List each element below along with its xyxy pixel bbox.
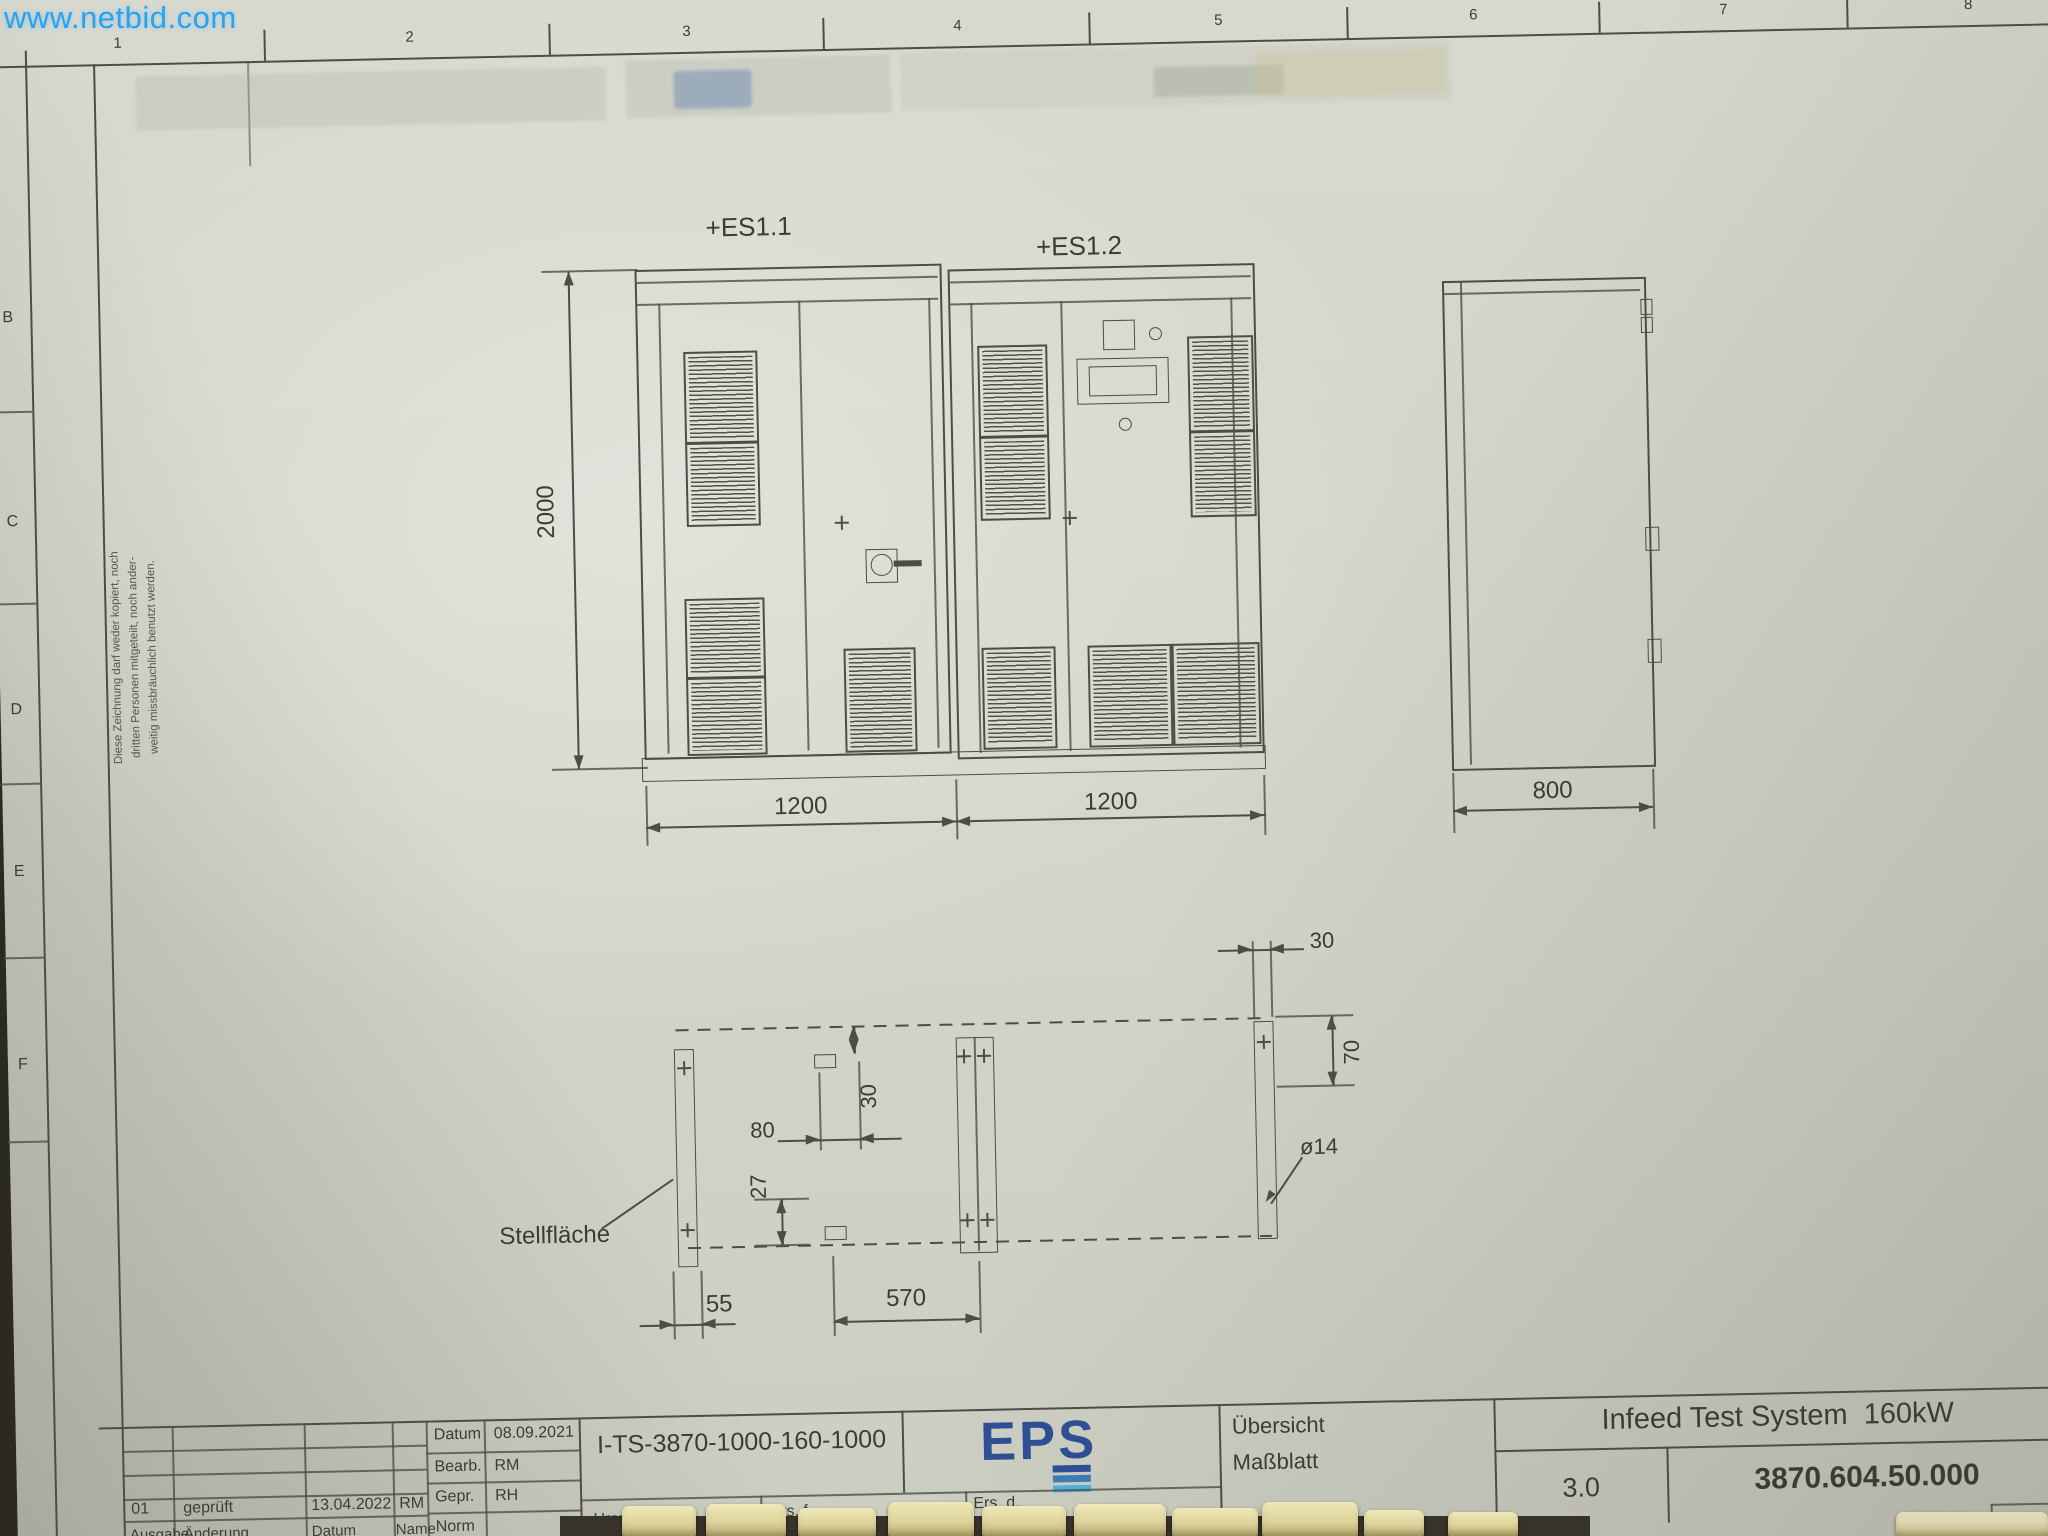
dim-ext-line bbox=[1252, 941, 1255, 1019]
dim-ext-line bbox=[541, 269, 637, 273]
fixing-hole-mark bbox=[680, 1223, 694, 1237]
page-tab bbox=[1364, 1510, 1424, 1536]
fixing-hole-mark bbox=[977, 1049, 991, 1063]
left-margin-line bbox=[25, 51, 59, 1536]
dim-arrow bbox=[1327, 1072, 1337, 1086]
dim-arrow bbox=[564, 271, 574, 285]
table-line bbox=[392, 1421, 396, 1536]
dim-line-depth bbox=[1453, 806, 1653, 812]
ruler-tick bbox=[8, 1141, 48, 1143]
ruler-number: 3 bbox=[666, 22, 706, 40]
info-label-bearb: Bearb. bbox=[434, 1458, 482, 1477]
table-line bbox=[123, 1469, 427, 1477]
dim-arrow bbox=[965, 1313, 979, 1323]
page-tab bbox=[1172, 1508, 1258, 1536]
table-line bbox=[427, 1509, 580, 1514]
dim-arrow bbox=[1453, 806, 1467, 816]
page-tab bbox=[1448, 1512, 1518, 1536]
vent-grille bbox=[1087, 644, 1173, 748]
page-tab bbox=[1262, 1502, 1358, 1536]
dim-cutout-offset-h-label: 80 bbox=[707, 1116, 818, 1144]
vent-grille bbox=[1187, 335, 1255, 432]
table-line bbox=[427, 1479, 580, 1484]
watermark: www.netbid.com bbox=[4, 0, 237, 36]
dim-arrow bbox=[776, 1199, 786, 1213]
info-label-norm: Norm bbox=[436, 1518, 475, 1536]
dim-arrow bbox=[777, 1231, 787, 1245]
table-line bbox=[426, 1421, 430, 1536]
vent-grille bbox=[979, 435, 1051, 520]
dim-arrow bbox=[1238, 944, 1252, 954]
dim-ext-line bbox=[955, 779, 958, 839]
fixing-hole-mark bbox=[960, 1213, 974, 1227]
drawing-sheet: 1 2 3 4 5 6 7 8 B C D E F Diese Zeichnun… bbox=[0, 0, 2048, 1536]
dim-depth-label: 800 bbox=[1472, 775, 1633, 806]
display-screen bbox=[1089, 365, 1158, 396]
dim-arrow bbox=[1250, 810, 1264, 820]
dim-arrow bbox=[848, 1026, 858, 1040]
dim-line bbox=[834, 1318, 980, 1323]
info-label-datum: Datum bbox=[434, 1426, 481, 1445]
floor-cutout bbox=[814, 1054, 836, 1068]
bleed-through-logo-mark bbox=[673, 70, 752, 110]
eps-logo-bar bbox=[1053, 1465, 1091, 1473]
dim-arrow bbox=[956, 816, 970, 826]
fixing-hole-mark bbox=[1257, 1035, 1271, 1049]
dim-ext-line bbox=[552, 767, 648, 771]
vent-grille bbox=[683, 350, 759, 444]
dim-line bbox=[1218, 948, 1304, 952]
revision-name: RM bbox=[399, 1495, 424, 1514]
part-number: 3870.604.50.000 bbox=[1677, 1457, 2048, 1499]
bleed-through-mark bbox=[1255, 49, 1446, 97]
drawing-title: Infeed Test System 160kW bbox=[1513, 1395, 2042, 1439]
dim-arrow bbox=[1326, 1016, 1336, 1030]
table-line bbox=[901, 1411, 905, 1493]
page-tab bbox=[706, 1504, 786, 1536]
table-line bbox=[304, 1423, 308, 1536]
dim-arrow bbox=[849, 1040, 859, 1054]
dim-line bbox=[640, 1323, 736, 1327]
revision-header-date: Datum bbox=[312, 1522, 357, 1536]
ruler-letter: F bbox=[18, 1056, 28, 1074]
vent-grille bbox=[977, 344, 1049, 437]
table-line bbox=[122, 1445, 426, 1453]
table-line bbox=[1991, 1502, 2048, 1505]
dim-line-height bbox=[568, 271, 580, 769]
info-value-gepr: RH bbox=[495, 1487, 518, 1505]
page-tab bbox=[982, 1506, 1066, 1536]
copyright-note: Diese Zeichnung darf weder kopiert, noch… bbox=[105, 477, 166, 838]
dim-arrow bbox=[646, 823, 660, 833]
mounting-rail-right bbox=[1253, 1021, 1278, 1239]
info-value-datum: 08.09.2021 bbox=[494, 1424, 574, 1444]
ruler-tick bbox=[1598, 2, 1601, 33]
version-number: 3.0 bbox=[1511, 1471, 1652, 1505]
dim-ext-line bbox=[1263, 775, 1266, 835]
ruler-number: 2 bbox=[389, 28, 429, 46]
revision-change: geprüft bbox=[183, 1499, 233, 1518]
ruler-number: 4 bbox=[937, 17, 977, 35]
ruler-tick bbox=[1346, 7, 1349, 38]
dim-arrow bbox=[659, 1319, 673, 1329]
revision-header-issue: Ausgabe bbox=[130, 1526, 190, 1536]
photo-of-drawing: 1 2 3 4 5 6 7 8 B C D E F Diese Zeichnun… bbox=[0, 0, 2048, 1536]
dim-arrow bbox=[1270, 944, 1284, 954]
main-switch-handle bbox=[894, 560, 922, 567]
dim-cutout-spacing-label: 570 bbox=[826, 1283, 987, 1314]
side-view-outline bbox=[1442, 277, 1656, 771]
fixing-hole-mark bbox=[677, 1061, 691, 1075]
dim-width1-label: 1200 bbox=[720, 791, 881, 822]
ruler-tick bbox=[4, 957, 44, 959]
page-tab bbox=[888, 1502, 974, 1536]
revision-header-name: Name bbox=[396, 1520, 436, 1536]
info-value-bearb: RM bbox=[494, 1457, 519, 1476]
dim-arrow bbox=[574, 755, 584, 769]
ruler-number: 5 bbox=[1198, 11, 1238, 29]
ruler-tick bbox=[0, 603, 36, 605]
ruler-number: 1 bbox=[97, 34, 137, 52]
hinge bbox=[1647, 639, 1661, 663]
ruler-letter: D bbox=[10, 701, 22, 719]
ruler-number: 7 bbox=[1703, 1, 1743, 19]
ruler-tick bbox=[0, 411, 32, 413]
cabinet1-label: +ES1.1 bbox=[668, 210, 829, 244]
door-lock-mark bbox=[835, 516, 849, 530]
dim-cutout-bottom-offset-label: 27 bbox=[745, 1146, 773, 1227]
fixing-hole-mark bbox=[980, 1213, 994, 1227]
vent-grille bbox=[1189, 430, 1257, 517]
table-line bbox=[1493, 1398, 1498, 1526]
ruler-tick bbox=[822, 18, 825, 49]
dim-arrow bbox=[833, 1316, 847, 1326]
ruler-letter: C bbox=[6, 513, 18, 531]
door-lock-mark bbox=[1063, 511, 1077, 525]
dim-arrow bbox=[701, 1319, 715, 1329]
hinge bbox=[1645, 527, 1659, 551]
vent-grille bbox=[685, 441, 761, 527]
dim-arrow bbox=[860, 1133, 874, 1143]
ruler-tick bbox=[1846, 0, 1849, 28]
dim-height-label: 2000 bbox=[532, 472, 562, 553]
fixing-hole-mark bbox=[957, 1049, 971, 1063]
page-tab bbox=[622, 1506, 696, 1536]
revision-date: 13.04.2022 bbox=[311, 1495, 391, 1515]
ruler-letter: E bbox=[14, 863, 25, 881]
dim-hole-diameter-label: ø14 bbox=[1300, 1134, 1338, 1161]
eps-logo: EPS bbox=[979, 1409, 1097, 1473]
dim-arrow bbox=[942, 816, 956, 826]
table-line bbox=[426, 1449, 579, 1454]
floor-cutout bbox=[825, 1226, 847, 1240]
dim-front-offset-label: 55 bbox=[679, 1290, 760, 1320]
vent-grille bbox=[981, 646, 1057, 750]
panel-button bbox=[1103, 320, 1136, 351]
dim-ext-line bbox=[645, 786, 648, 846]
dim-rail-width-label: 30 bbox=[1309, 928, 1334, 955]
ruler-number: 6 bbox=[1453, 6, 1493, 24]
hinge bbox=[1640, 299, 1652, 315]
table-line bbox=[1494, 1438, 2048, 1453]
plan-area-label: Stellfläche bbox=[464, 1220, 645, 1252]
revision-issue: 01 bbox=[131, 1500, 149, 1518]
dim-edge-offset-label: 70 bbox=[1338, 1012, 1366, 1093]
hinge bbox=[1641, 317, 1653, 333]
ruler-tick bbox=[263, 30, 266, 61]
ruler-letter: B bbox=[2, 309, 13, 327]
ruler-tick bbox=[1088, 12, 1091, 43]
table-line bbox=[124, 1515, 428, 1523]
vent-grille bbox=[843, 647, 917, 752]
bleed-through-mark bbox=[135, 67, 606, 131]
table-line bbox=[484, 1419, 488, 1536]
dim-arrow bbox=[1639, 802, 1653, 812]
vent-grille bbox=[686, 676, 768, 756]
vent-grille bbox=[684, 597, 766, 679]
page-tab bbox=[1074, 1504, 1166, 1536]
cabinet2-label: +ES1.2 bbox=[999, 229, 1160, 263]
dim-width2-label: 1200 bbox=[1030, 787, 1191, 818]
revision-header-change: Änderung bbox=[184, 1524, 249, 1536]
drawing-id: I-TS-3870-1000-160-1000 bbox=[589, 1425, 895, 1460]
dim-ext-line bbox=[1652, 769, 1655, 829]
doc-type-line1: Übersicht bbox=[1232, 1412, 1325, 1440]
info-label-gepr: Gepr. bbox=[435, 1488, 475, 1507]
eps-logo-bar bbox=[1053, 1475, 1091, 1483]
page-tab bbox=[1896, 1512, 2048, 1536]
bleed-through-mark bbox=[625, 55, 891, 119]
ruler-tick bbox=[548, 24, 551, 55]
page-tab bbox=[798, 1508, 876, 1536]
table-line bbox=[1666, 1447, 1670, 1523]
vent-grille bbox=[1171, 642, 1261, 746]
table-line bbox=[580, 1486, 1220, 1501]
doc-type-line2: Maßblatt bbox=[1232, 1448, 1318, 1476]
ruler-tick bbox=[0, 783, 40, 785]
plan-outline-dashed-top bbox=[675, 1017, 1267, 1031]
ruler-number: 8 bbox=[1948, 0, 1988, 13]
dim-ext-line bbox=[1452, 773, 1455, 833]
